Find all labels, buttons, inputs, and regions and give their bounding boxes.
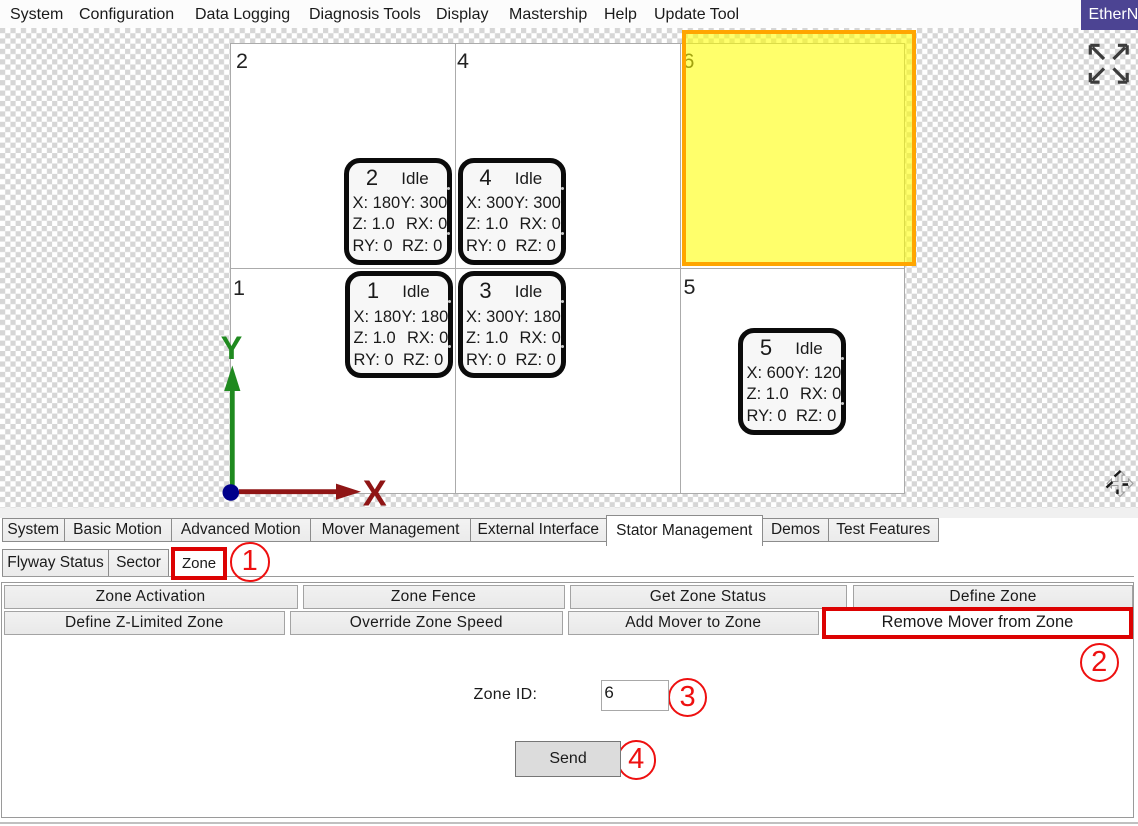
svg-text:Y: Y [221, 330, 243, 366]
